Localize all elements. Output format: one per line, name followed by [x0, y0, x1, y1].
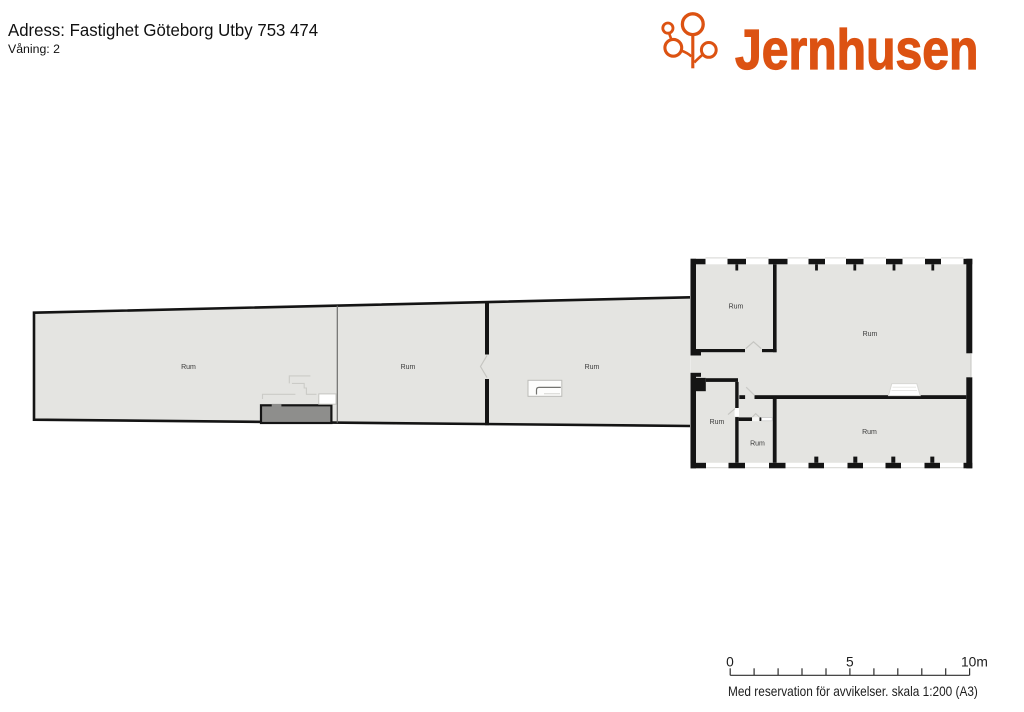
- svg-text:Rum: Rum: [750, 441, 765, 448]
- svg-text:Rum: Rum: [585, 364, 600, 371]
- svg-text:10m: 10m: [961, 655, 988, 670]
- svg-text:Rum: Rum: [863, 331, 878, 338]
- svg-text:Rum: Rum: [401, 364, 416, 371]
- svg-text:5: 5: [846, 655, 854, 670]
- svg-text:Rum: Rum: [729, 304, 744, 311]
- svg-text:0: 0: [726, 655, 734, 670]
- svg-text:Rum: Rum: [710, 419, 725, 426]
- svg-text:Rum: Rum: [862, 429, 877, 436]
- svg-text:Rum: Rum: [181, 364, 196, 371]
